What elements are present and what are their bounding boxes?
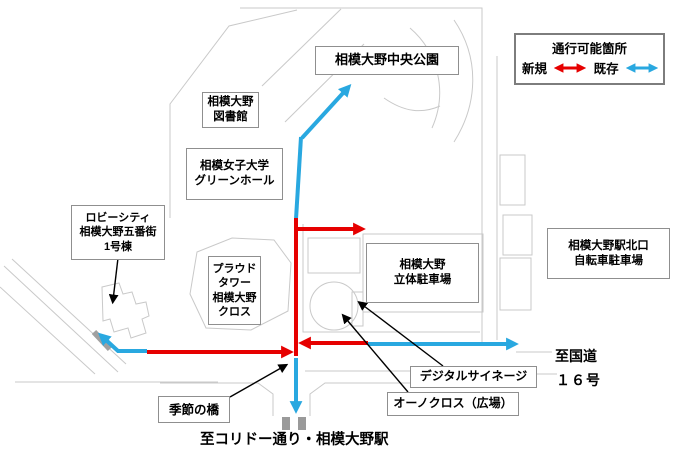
caption-to-route16-line1: 至国道 bbox=[555, 346, 597, 366]
label-seasonal-bridge: 季節の橋 bbox=[158, 396, 230, 423]
legend-new-arrow-icon bbox=[555, 63, 585, 73]
label-proud-tower: プラウド タワー 相模大野 クロス bbox=[208, 256, 261, 325]
southwest-diagonal-roads bbox=[0, 259, 126, 374]
label-ohno-cross: オーノクロス（広場） bbox=[387, 392, 519, 416]
label-green-hall: 相模女子大学 グリーンホール bbox=[186, 148, 283, 200]
existing-route-southwest bbox=[106, 340, 147, 351]
small-building-outline bbox=[308, 238, 360, 273]
label-parking: 相模大野 立体駐車場 bbox=[366, 243, 479, 303]
pointer-ohno-cross bbox=[347, 320, 408, 392]
legend-row: 新規 既存 bbox=[522, 58, 657, 77]
caption-to-corridor-station: 至コリドー通り・相模大野駅 bbox=[200, 428, 389, 449]
lobby-building-outline bbox=[102, 283, 149, 338]
park-contour-3 bbox=[384, 98, 440, 111]
legend-existing-arrow-icon bbox=[627, 63, 657, 73]
pointer-digital-signage bbox=[364, 306, 443, 366]
park-contour-1 bbox=[410, 28, 440, 128]
route-map: 相模大野中央公園 相模大野 図書館 相模女子大学 グリーンホール ロビーシティ … bbox=[0, 0, 690, 461]
label-lobby-city: ロビーシティ 相模大野五番街 1号棟 bbox=[71, 205, 165, 260]
label-central-park: 相模大野中央公園 bbox=[315, 46, 459, 75]
legend-box: 通行可能箇所 新規 既存 bbox=[514, 33, 665, 85]
caption-to-route16-line2: １６号 bbox=[556, 370, 601, 390]
legend-existing-label: 既存 bbox=[594, 58, 619, 77]
park-contour-2 bbox=[454, 20, 473, 142]
label-digital-signage: デジタルサイネージ bbox=[410, 366, 537, 388]
legend-new-label: 新規 bbox=[522, 58, 547, 77]
pointer-lobby-city bbox=[114, 258, 119, 296]
east-building-2 bbox=[503, 215, 532, 255]
label-bicycle-parking: 相模大野駅北口 自転車駐車場 bbox=[547, 228, 670, 279]
plaza-circle bbox=[310, 282, 358, 330]
east-building-3 bbox=[500, 258, 531, 310]
existing-route-north-vertical bbox=[296, 137, 301, 219]
label-library: 相模大野 図書館 bbox=[202, 92, 259, 128]
east-building-1 bbox=[500, 155, 525, 205]
legend-title: 通行可能箇所 bbox=[522, 38, 657, 57]
